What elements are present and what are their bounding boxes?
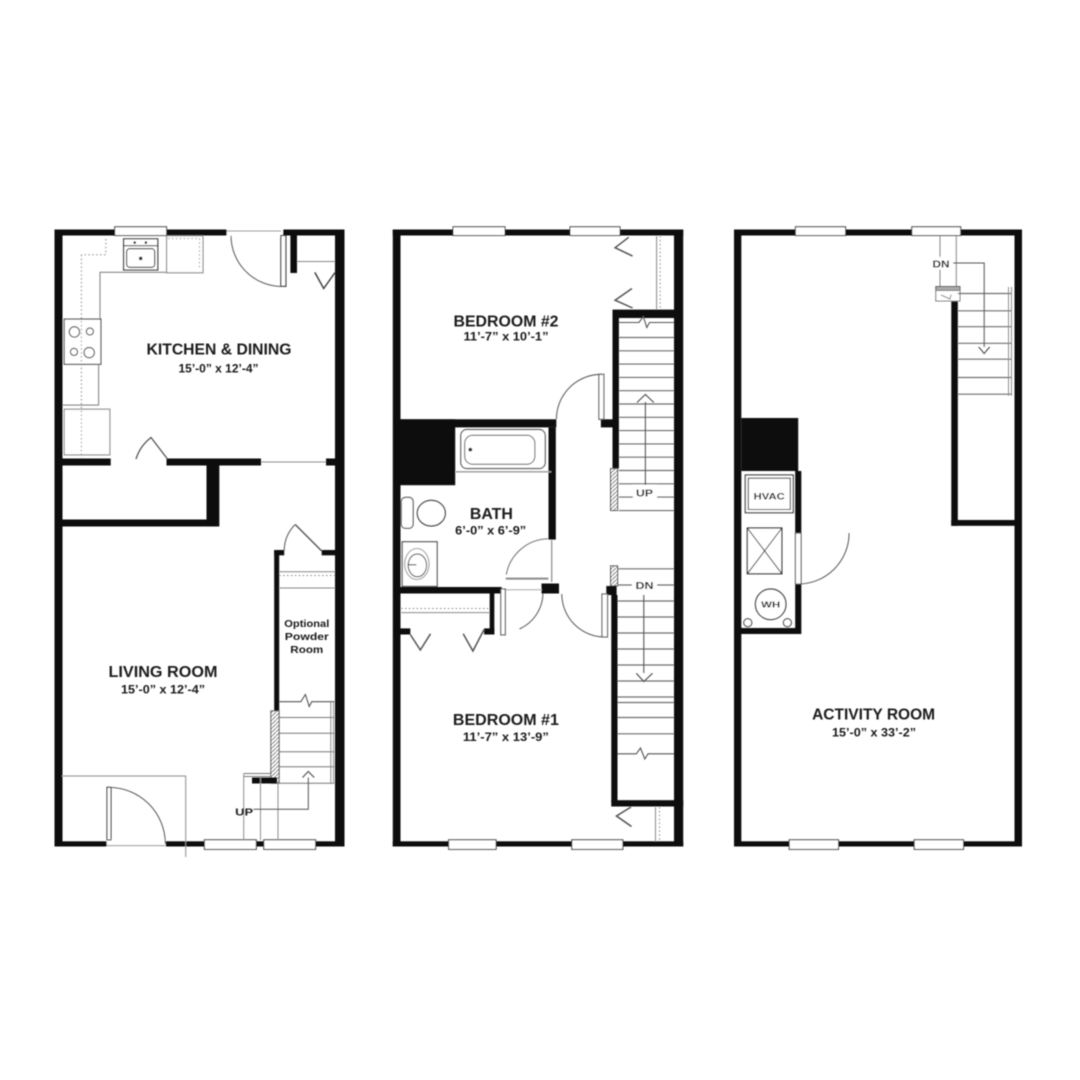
svg-text:HVAC: HVAC [754,491,785,502]
svg-text:BEDROOM #2: BEDROOM #2 [454,314,559,331]
svg-text:WH: WH [761,600,780,610]
svg-text:BATH: BATH [470,506,513,523]
svg-text:15’-0” x 12’-4”: 15’-0” x 12’-4” [179,361,259,375]
svg-text:Powder: Powder [285,631,329,643]
svg-text:UP: UP [636,488,653,500]
svg-text:Optional: Optional [284,618,329,630]
svg-text:KITCHEN & DINING: KITCHEN & DINING [147,342,292,359]
svg-text:6’-0” x 6’-9”: 6’-0” x 6’-9” [455,524,526,538]
svg-text:DN: DN [636,580,654,592]
svg-text:UP: UP [235,807,253,819]
svg-text:Room: Room [290,644,323,656]
svg-text:15’-0” x 33’-2”: 15’-0” x 33’-2” [832,725,916,739]
svg-text:11’-7” x 13’-9”: 11’-7” x 13’-9” [463,730,549,744]
svg-text:LIVING ROOM: LIVING ROOM [109,664,218,681]
svg-text:BEDROOM #1: BEDROOM #1 [453,712,559,729]
svg-text:ACTIVITY ROOM: ACTIVITY ROOM [812,706,935,723]
svg-text:15’-0” x 12’-4”: 15’-0” x 12’-4” [121,682,205,696]
svg-text:11’-7” x 10’-1”: 11’-7” x 10’-1” [464,329,549,343]
svg-text:DN: DN [933,258,950,270]
